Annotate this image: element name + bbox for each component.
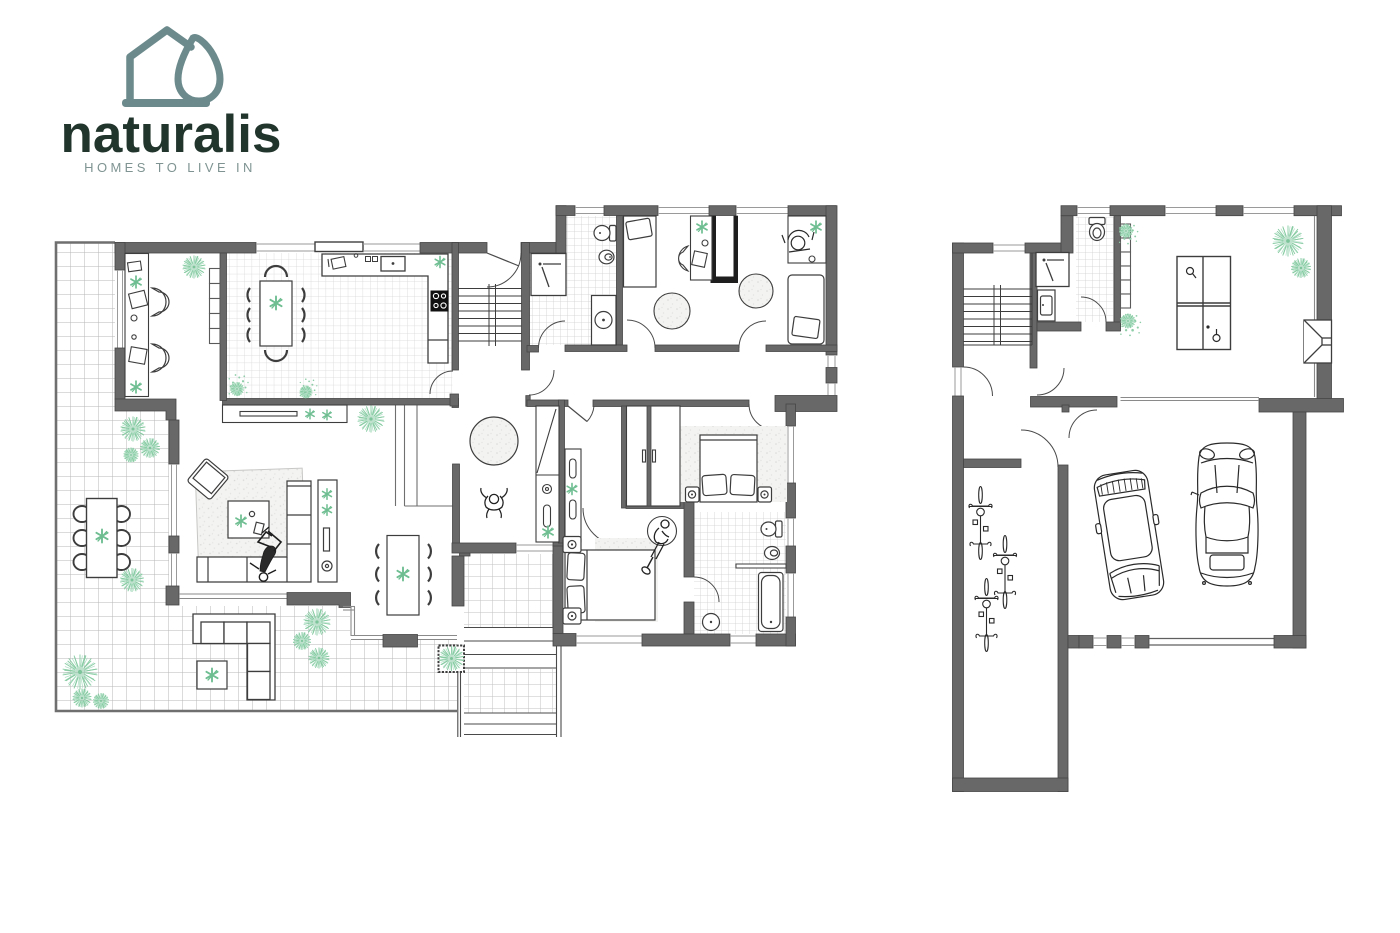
svg-text:HOMES TO LIVE IN: HOMES TO LIVE IN <box>84 160 256 175</box>
svg-text:naturalis: naturalis <box>61 105 282 164</box>
